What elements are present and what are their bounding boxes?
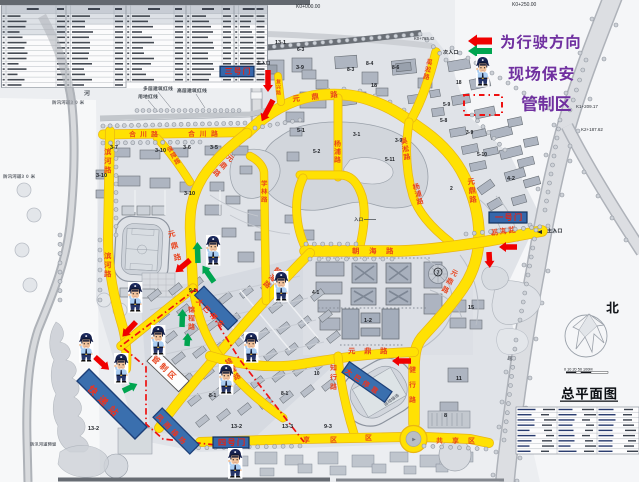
svg-text:8-3: 8-3 (347, 67, 354, 73)
svg-text:8-4: 8-4 (366, 61, 373, 67)
svg-text:4-2: 4-2 (507, 176, 515, 182)
svg-text:K2+187.62: K2+187.62 (581, 127, 603, 132)
svg-text:K0+000.00: K0+000.00 (296, 4, 321, 10)
svg-text:11: 11 (456, 376, 462, 382)
svg-text:3-6: 3-6 (183, 145, 191, 151)
svg-text:3-9: 3-9 (395, 138, 402, 144)
svg-text:3-10: 3-10 (155, 148, 166, 154)
svg-text:13-3: 13-3 (282, 424, 293, 430)
svg-text:9-3: 9-3 (324, 424, 332, 430)
svg-text:8-1: 8-1 (281, 391, 288, 397)
svg-text:15: 15 (468, 305, 474, 311)
svg-text:4-1: 4-1 (312, 290, 319, 296)
svg-text:5-9: 5-9 (443, 102, 450, 108)
svg-text:6-3: 6-3 (297, 47, 304, 53)
svg-text:K0+763.42: K0+763.42 (414, 36, 435, 41)
svg-text:7: 7 (436, 271, 439, 277)
svg-text:5-2: 5-2 (313, 149, 320, 155)
svg-text:3-7: 3-7 (110, 145, 118, 151)
svg-text:5-8: 5-8 (440, 118, 447, 124)
svg-text:3-10: 3-10 (96, 173, 107, 179)
svg-text:3-9: 3-9 (296, 65, 304, 71)
svg-text:13-2: 13-2 (88, 426, 99, 432)
svg-text:8-1: 8-1 (209, 393, 216, 399)
svg-text:1-2: 1-2 (364, 318, 372, 324)
svg-text:3-9: 3-9 (466, 130, 473, 136)
svg-text:5-10: 5-10 (477, 152, 487, 158)
svg-text:3-5: 3-5 (210, 145, 218, 151)
svg-text:18: 18 (371, 83, 377, 89)
svg-text:3-10: 3-10 (184, 191, 195, 197)
svg-text:9-1: 9-1 (189, 288, 196, 294)
svg-text:0 10 20 50 100M: 0 10 20 50 100M (564, 368, 593, 372)
svg-text:5-1: 5-1 (297, 128, 305, 134)
svg-text:K1+209.17: K1+209.17 (576, 104, 598, 109)
svg-text:13-2: 13-2 (231, 424, 242, 430)
svg-text:18: 18 (456, 80, 462, 86)
svg-text:10: 10 (314, 371, 320, 377)
svg-text:8-6: 8-6 (392, 65, 399, 71)
svg-text:2: 2 (450, 186, 453, 192)
svg-text:K0+250.00: K0+250.00 (512, 2, 537, 8)
svg-text:13-1: 13-1 (275, 40, 286, 46)
svg-text:3-1: 3-1 (353, 132, 360, 138)
svg-text:5-11: 5-11 (385, 157, 395, 163)
svg-text:8: 8 (444, 413, 447, 419)
